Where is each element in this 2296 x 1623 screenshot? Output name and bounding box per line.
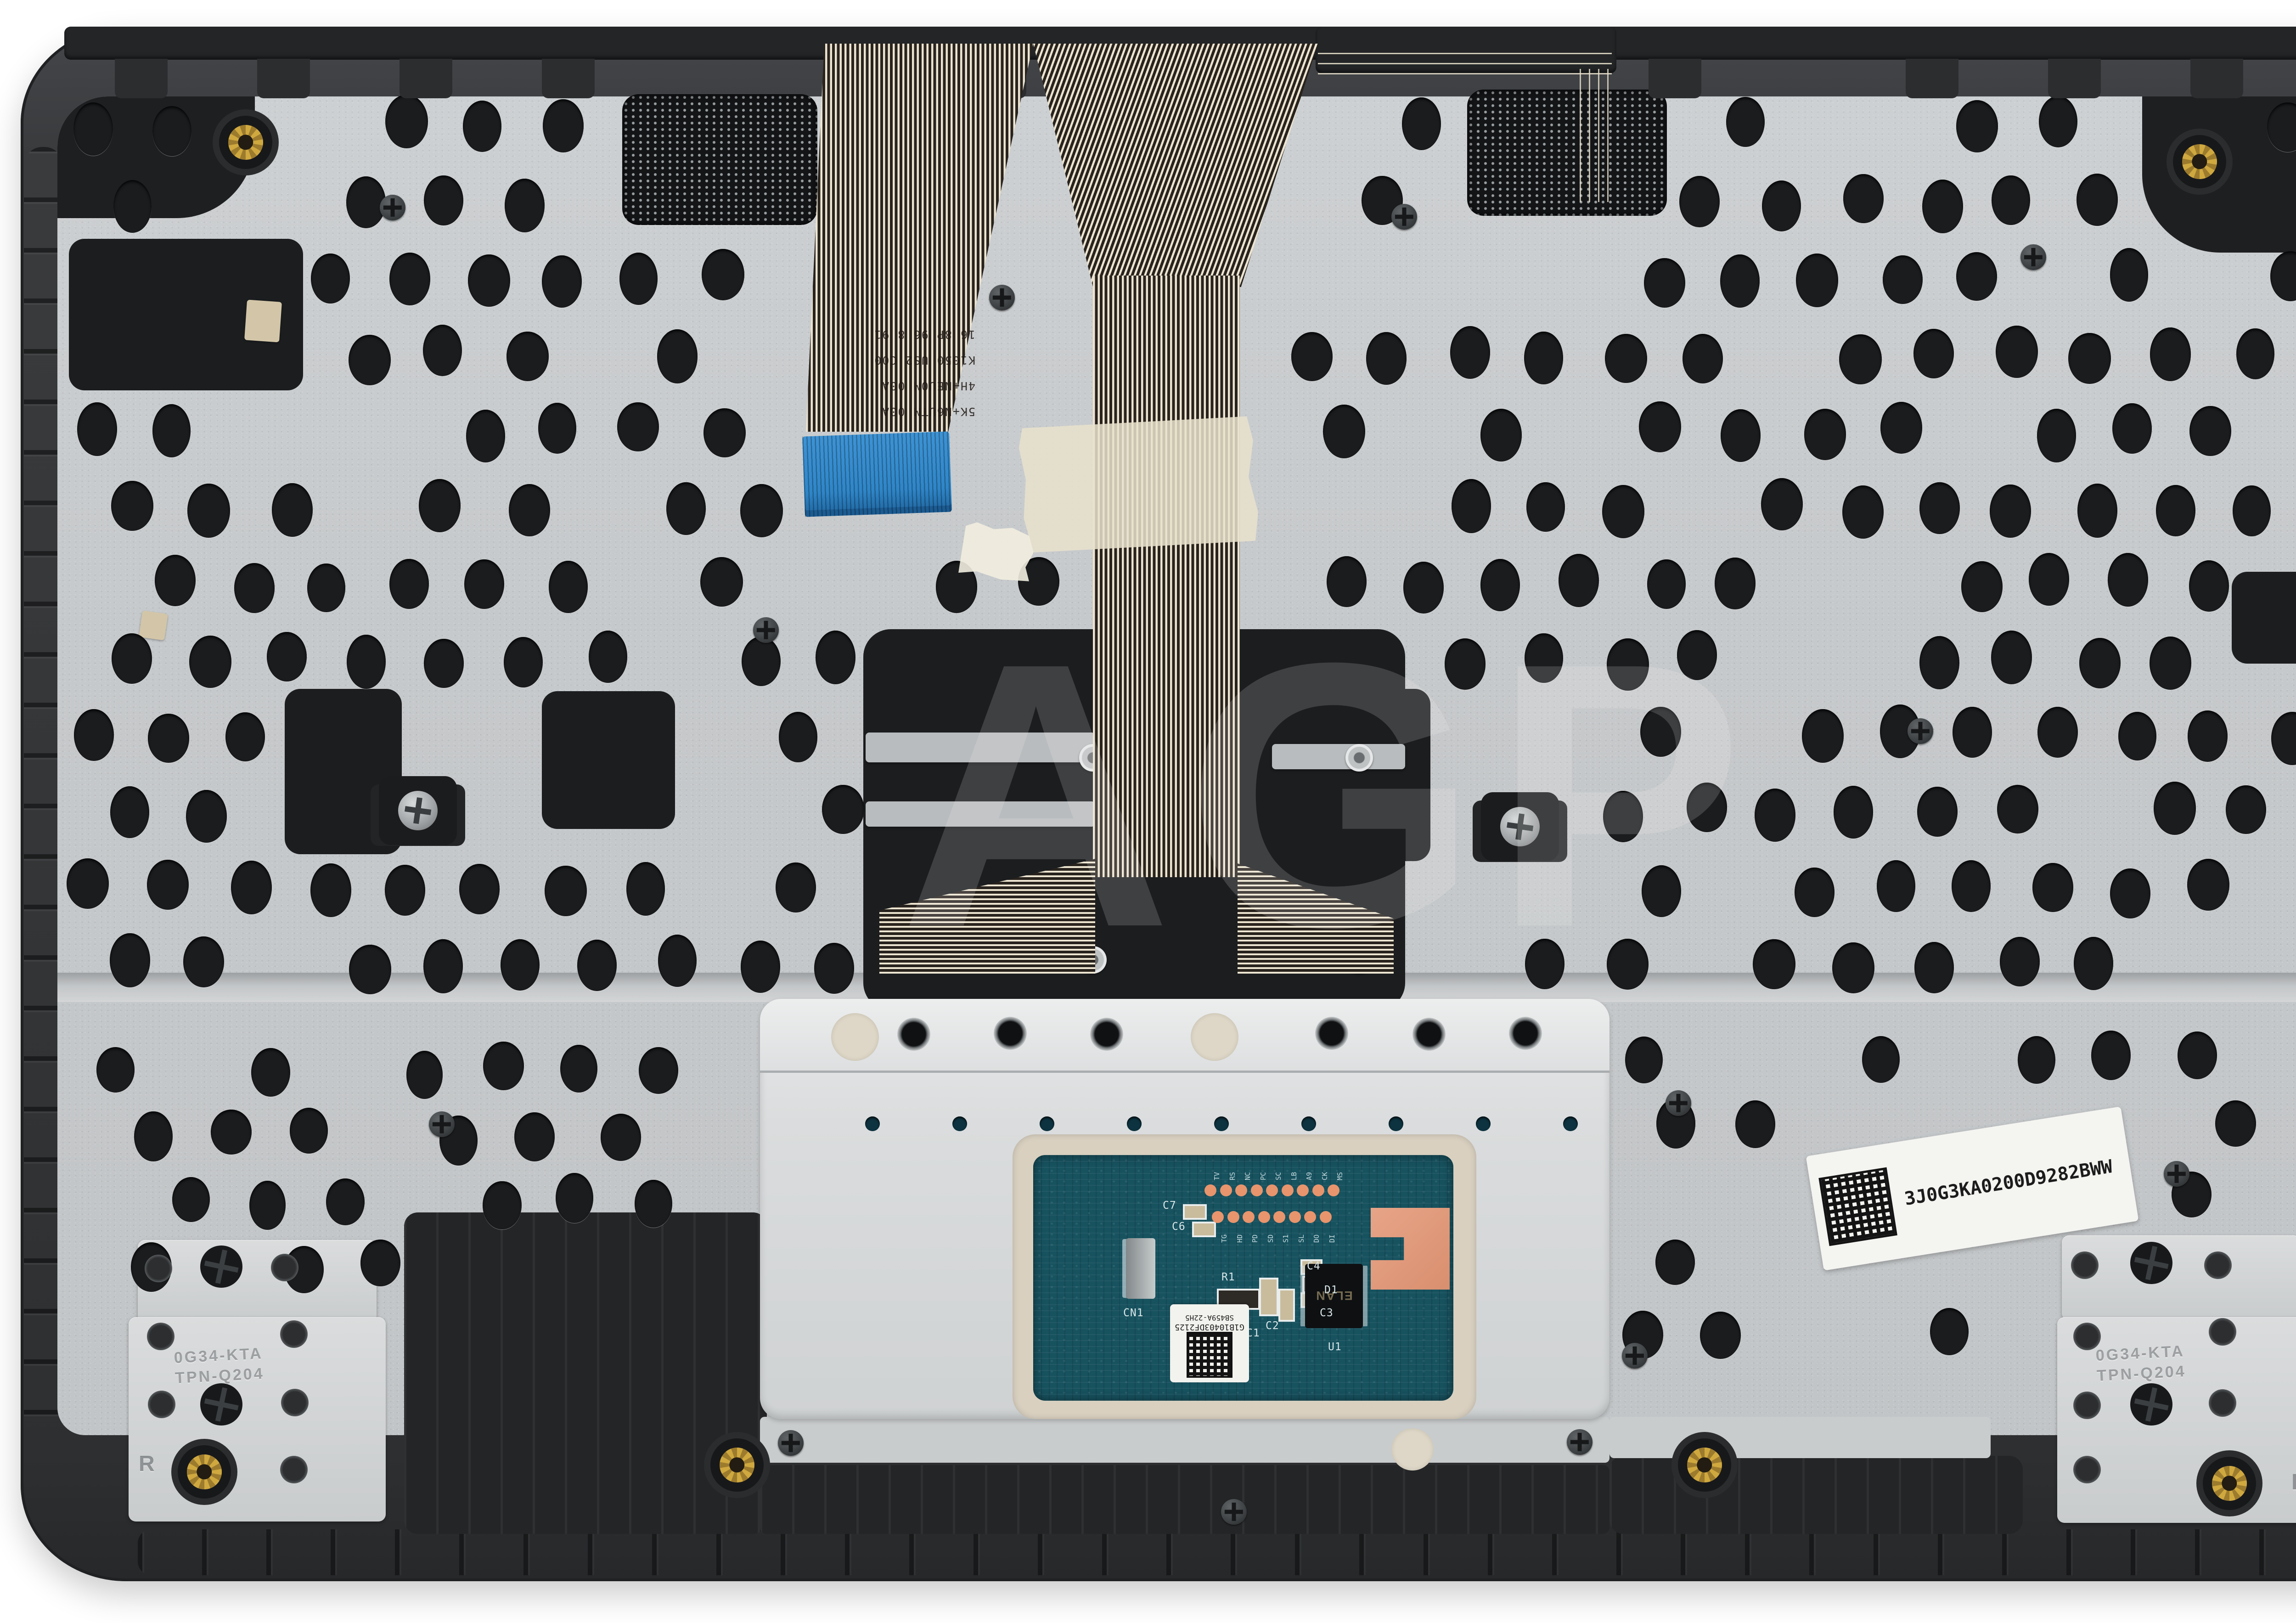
plate-hole — [1804, 409, 1846, 460]
plate-hole — [1640, 707, 1681, 757]
plate-hole — [234, 563, 275, 613]
plate-hole — [148, 714, 189, 762]
plate-hole — [1832, 942, 1874, 994]
plate-hole — [2037, 707, 2078, 758]
plate-hole — [1996, 326, 2038, 378]
top-trim-tab — [542, 59, 595, 98]
plate-hole — [155, 555, 195, 606]
plate-hole — [2039, 96, 2077, 147]
plate-hole — [639, 1047, 678, 1094]
plate-hole — [1843, 174, 1883, 223]
plate-hole — [187, 484, 230, 538]
plate-hole — [1715, 558, 1755, 609]
hinge-right-letter: L — [2291, 1470, 2296, 1495]
hinge-bracket-hole — [280, 1456, 308, 1483]
plate-hole — [419, 479, 461, 532]
plate-hole — [1919, 636, 1959, 689]
plate-hole — [2091, 1031, 2131, 1080]
phillips-screw — [1666, 1090, 1691, 1116]
plate-hole — [2110, 248, 2149, 302]
plate-hole — [560, 1045, 597, 1093]
plate-hole — [2018, 1036, 2055, 1084]
plate-hole — [2150, 327, 2191, 381]
connector-contact-stripes — [802, 431, 952, 517]
plate-hole — [2189, 406, 2231, 456]
plate-hole — [1625, 1037, 1663, 1083]
plate-hole — [1677, 630, 1717, 680]
solder-pad — [1212, 1211, 1224, 1223]
plate-hole — [189, 636, 231, 688]
ref-r1: R1 — [1221, 1271, 1235, 1283]
solder-pad — [1258, 1211, 1270, 1223]
adhesive-disc — [1391, 1428, 1434, 1471]
plate-hole — [1839, 334, 1881, 384]
solder-pad-label: SD — [1266, 1234, 1275, 1243]
ref-c3: C3 — [1320, 1307, 1334, 1319]
plate-hole — [776, 862, 816, 913]
plate-hole — [504, 637, 543, 688]
hinge-bracket-hole — [280, 1320, 308, 1348]
plate-hole — [1877, 860, 1915, 912]
plate-hole — [249, 1181, 286, 1230]
plate-hole — [505, 179, 545, 232]
plate-hole — [77, 402, 117, 456]
plate-hole — [1796, 254, 1839, 307]
plate-hole — [1961, 561, 2003, 612]
plate-hole — [2029, 553, 2069, 606]
plate-hole — [814, 943, 854, 993]
plate-hole — [700, 557, 743, 607]
plate-hole — [1762, 180, 1801, 232]
plate-hole — [506, 332, 549, 381]
speaker-mesh-right — [1467, 90, 1667, 216]
datamatrix-code — [1187, 1332, 1232, 1378]
plate-hole — [385, 865, 425, 915]
plate-cutout — [2232, 572, 2296, 664]
bracket-small-hole — [1214, 1116, 1229, 1131]
solder-pad-label: LB — [1290, 1172, 1298, 1180]
solder-pad — [1320, 1211, 1332, 1223]
ref-cn1: CN1 — [1123, 1307, 1144, 1319]
plate-hole — [1735, 1100, 1775, 1148]
keyboard-flex-cable-bundle — [1093, 276, 1240, 877]
plate-hole — [96, 1047, 135, 1093]
plate-hole — [2118, 712, 2156, 761]
flex-cable-connector-blue — [802, 431, 952, 517]
frame-ribs-bottom — [138, 1529, 2296, 1575]
plate-hole — [1720, 254, 1760, 308]
solder-pad — [1204, 1184, 1216, 1196]
hinge-bracket-hole — [2073, 1392, 2101, 1419]
plate-hole — [2226, 785, 2266, 834]
plate-hole — [2112, 403, 2152, 454]
plate-hole — [326, 1178, 365, 1226]
plate-hole — [1327, 556, 1367, 607]
brass-threaded-insert — [720, 1448, 754, 1482]
solder-pad-label: TG — [1220, 1234, 1228, 1243]
plate-hole — [1883, 255, 1923, 304]
plate-hole — [406, 1051, 443, 1099]
plate-hole — [2215, 1100, 2256, 1147]
plate-hole — [389, 559, 429, 609]
plate-hole — [1403, 562, 1444, 614]
top-trim-tab — [2190, 59, 2243, 98]
solder-pad — [1289, 1211, 1301, 1223]
solder-pad — [1328, 1184, 1339, 1196]
plate-hole — [1753, 939, 1795, 989]
hinge-bracket-hole — [281, 1389, 309, 1416]
plate-hole — [2068, 333, 2110, 384]
plate-hole — [740, 484, 783, 537]
plate-hole — [225, 712, 265, 761]
hinge-bracket-hole — [2204, 1251, 2232, 1279]
hinge-left-letter: R — [139, 1451, 155, 1476]
solder-pad — [1304, 1211, 1316, 1223]
brass-threaded-insert — [1687, 1448, 1722, 1482]
plate-hole — [112, 633, 152, 684]
plate-hole — [549, 561, 588, 614]
solder-pad-label: DI — [1328, 1234, 1336, 1243]
plate-hole — [1842, 485, 1884, 539]
solder-pad-label: RS — [1228, 1172, 1237, 1180]
hinge-bracket-cross-hole — [200, 1245, 242, 1288]
touchpad-bracket-top-band — [760, 999, 1609, 1073]
top-trim-tab — [115, 59, 168, 98]
adhesive-disc — [831, 1013, 879, 1061]
plate-hole — [459, 864, 500, 914]
hinge-bracket-hole — [2073, 1456, 2101, 1483]
solder-pad — [1312, 1184, 1324, 1196]
plate-hole — [2188, 710, 2228, 762]
touchpad-controller-chip: ELAN — [1305, 1264, 1363, 1328]
bracket-small-hole — [1389, 1116, 1403, 1131]
solder-pad — [1235, 1184, 1247, 1196]
plate-hole — [1755, 789, 1795, 842]
plate-hole — [1291, 332, 1333, 381]
plate-hole — [1644, 258, 1685, 308]
plate-hole — [2187, 859, 2229, 911]
plate-hole — [423, 939, 462, 993]
hinge-bracket-right-upper — [2062, 1235, 2296, 1320]
capacitor-c1 — [1259, 1278, 1278, 1316]
plate-hole — [702, 249, 744, 300]
plate-hole — [657, 329, 698, 383]
keyboard-latch-left — [379, 776, 457, 845]
bracket-small-hole — [1127, 1116, 1142, 1131]
plate-hole — [111, 481, 153, 531]
plate-hole — [1956, 252, 1997, 301]
phillips-screw — [2020, 244, 2046, 270]
plate-hole — [1991, 631, 2032, 684]
ref-c2: C2 — [1266, 1320, 1279, 1332]
keyboard-latch-right — [1481, 792, 1559, 861]
solder-pad — [1220, 1184, 1232, 1196]
membrane-metal-strip — [866, 733, 1095, 762]
flex-cable-thin-traces-vertical — [1580, 69, 1612, 202]
bracket-screw-hole — [1090, 1018, 1123, 1051]
plate-hole — [1930, 1308, 1969, 1356]
phillips-screw — [380, 195, 405, 220]
touchpad-serial-label: G1B10403DF2125 SB459A-22H5 — [1170, 1304, 1249, 1382]
solder-pad — [1297, 1184, 1309, 1196]
plate-hole — [577, 940, 616, 991]
cable-print-line: 16 8P 96 8 91 — [814, 321, 975, 347]
plate-hole — [2074, 937, 2113, 990]
cable-print-line: K1050 US2 C00 — [814, 347, 975, 373]
plate-hole — [211, 1110, 251, 1155]
plate-hole — [1526, 482, 1565, 532]
phillips-screw — [1622, 1343, 1648, 1369]
plate-hole — [514, 1112, 555, 1161]
bracket-small-hole — [1301, 1116, 1316, 1131]
bracket-small-hole — [1476, 1116, 1491, 1131]
solder-pad-label: SC — [1274, 1172, 1283, 1180]
hinge-bracket-hole — [2073, 1323, 2101, 1350]
top-trim-tab — [2048, 59, 2101, 98]
phillips-screw — [753, 617, 779, 643]
plate-hole — [147, 860, 189, 910]
plate-hole — [152, 106, 191, 156]
plate-hole — [311, 254, 350, 304]
hinge-bracket-hole — [2209, 1389, 2236, 1417]
bracket-screw-hole — [897, 1018, 930, 1051]
plate-hole — [1452, 479, 1491, 533]
plate-hole — [172, 1177, 210, 1222]
plate-hole — [1880, 402, 1923, 454]
plate-hole — [543, 99, 584, 152]
plate-hole — [741, 941, 780, 992]
plate-hole — [1655, 1240, 1695, 1285]
phillips-screw — [429, 1111, 455, 1137]
plate-hole — [389, 253, 430, 305]
plate-hole — [1445, 638, 1486, 690]
plate-hole — [1913, 329, 1954, 378]
hinge-bracket-cross-hole — [2130, 1383, 2172, 1426]
hinge-bracket-hole — [145, 1255, 172, 1282]
plate-hole — [658, 935, 697, 987]
plate-hole — [290, 1108, 328, 1154]
plate-hole — [231, 861, 272, 914]
plate-hole — [423, 325, 462, 377]
phillips-screw — [2164, 1161, 2189, 1187]
plate-hole — [1323, 405, 1365, 458]
brass-threaded-insert — [187, 1454, 222, 1489]
plate-hole — [1687, 783, 1727, 832]
plate-hole — [2077, 484, 2117, 538]
plate-hole — [2189, 560, 2229, 612]
plate-hole — [74, 709, 113, 761]
plate-hole — [1450, 326, 1490, 379]
touchpad-connector-cn1 — [1126, 1238, 1155, 1299]
plate-hole — [2233, 485, 2271, 536]
plate-hole — [1559, 554, 1599, 608]
plate-hole — [1953, 707, 1992, 758]
solder-pad — [1282, 1184, 1294, 1196]
plate-hole — [601, 1114, 642, 1161]
plate-hole — [468, 254, 510, 307]
ref-d1: D1 — [1324, 1284, 1338, 1296]
plate-hole — [1914, 942, 1954, 993]
plate-hole — [1700, 1312, 1741, 1359]
bracket-small-hole — [952, 1116, 967, 1131]
solder-pad-label: PD — [1251, 1234, 1259, 1243]
plate-hole — [1639, 401, 1681, 453]
plate-hole — [626, 862, 665, 916]
bracket-small-hole — [865, 1116, 880, 1131]
capacitor-c7 — [1183, 1204, 1207, 1220]
solder-pad — [1266, 1184, 1278, 1196]
solder-pad-label: MS — [1336, 1172, 1344, 1180]
plate-hole — [360, 1240, 400, 1286]
plate-hole — [1795, 868, 1835, 917]
bottom-plastic-zone-center — [760, 1465, 1609, 1534]
plate-hole — [1480, 559, 1520, 611]
hinge-bracket-cross-hole — [2130, 1242, 2172, 1284]
plate-hole — [347, 635, 386, 688]
hinge-bracket-hole — [271, 1254, 298, 1281]
solder-pad-label: PC — [1259, 1172, 1267, 1180]
bracket-screw-hole — [1412, 1018, 1446, 1051]
solder-pad — [1251, 1184, 1263, 1196]
plate-hole — [134, 1111, 172, 1162]
plate-hole — [1683, 334, 1723, 383]
solder-pad-label: HD — [1236, 1234, 1244, 1243]
plate-hole — [1761, 478, 1803, 530]
beige-sticker — [244, 299, 282, 342]
plate-hole — [1525, 633, 1563, 683]
brass-threaded-insert — [2182, 144, 2217, 179]
plate-hole — [346, 176, 386, 228]
hinge-right-embossed-code: 0G34-KTA TPN-Q204 — [2095, 1341, 2187, 1386]
plate-hole — [501, 939, 540, 991]
solder-pad — [1273, 1211, 1285, 1223]
hinge-bracket-hole — [147, 1323, 174, 1350]
hinge-bracket-cross-hole — [200, 1383, 242, 1426]
plate-hole — [1952, 860, 1991, 912]
plate-hole — [2110, 868, 2150, 919]
plate-hole — [466, 410, 505, 462]
plate-hole — [2108, 553, 2148, 607]
latch-screw — [1500, 807, 1540, 846]
brass-threaded-insert — [228, 125, 263, 160]
phillips-screw — [1567, 1429, 1593, 1455]
hinge-left-embossed-code: 0G34-KTA TPN-Q204 — [174, 1343, 265, 1388]
plate-hole — [1919, 482, 1959, 534]
plate-hole — [272, 483, 313, 536]
kapton-tape — [1018, 412, 1260, 557]
hinge-bracket-hole — [148, 1391, 175, 1418]
plate-hole — [113, 180, 152, 233]
plate-hole — [349, 335, 391, 386]
laptop-palmrest-rear-photo: 5K+N6UTM 00A 4H+NEU0M 00A K1050 US2 C00 … — [0, 0, 2296, 1623]
plate-hole — [666, 482, 706, 535]
plate-hole — [822, 785, 864, 834]
solder-pad-label: TV — [1213, 1172, 1221, 1180]
plate-hole — [589, 631, 628, 683]
plate-hole — [2154, 782, 2196, 835]
plate-hole — [2037, 409, 2076, 462]
bottom-metal-strip-right — [1609, 1417, 1991, 1458]
beige-sticker — [139, 610, 168, 640]
plate-hole — [1917, 787, 1958, 837]
plate-hole — [2236, 328, 2274, 379]
plate-hole — [1602, 485, 1644, 538]
plate-hole — [2079, 638, 2121, 688]
cable-print-line: 5K+N6UTM 00A — [814, 399, 975, 424]
serial-number-text: 3J0G3KA0200D9282BWW — [1903, 1156, 2114, 1210]
capacitor-c2 — [1278, 1289, 1295, 1322]
plate-hole — [463, 101, 501, 152]
adhesive-disc — [1191, 1013, 1238, 1061]
plate-hole — [424, 639, 463, 688]
plate-hole — [1802, 709, 1844, 763]
phillips-screw — [1908, 718, 1933, 744]
phillips-screw — [1221, 1499, 1247, 1525]
top-trim-tab — [400, 59, 452, 98]
flex-cable-thin-traces — [1318, 46, 1612, 74]
plate-hole — [1524, 332, 1563, 384]
phillips-screw — [989, 285, 1015, 310]
plate-hole — [2156, 485, 2195, 536]
top-trim-tab — [1649, 59, 1701, 98]
plate-hole — [2178, 1031, 2217, 1079]
plate-hole — [703, 408, 746, 457]
hinge-bracket-hole — [2209, 1318, 2236, 1346]
plate-hole — [742, 637, 781, 686]
plate-hole — [424, 175, 463, 225]
plate-hole — [310, 863, 351, 917]
plate-hole — [464, 559, 504, 609]
plate-hole — [617, 402, 658, 451]
solder-pad — [1243, 1211, 1255, 1223]
bracket-screw-hole — [1509, 1017, 1542, 1050]
plate-hole — [183, 936, 224, 988]
ref-c7: C7 — [1163, 1200, 1176, 1212]
plate-cutout — [542, 691, 675, 829]
top-trim-tab — [257, 59, 310, 98]
plate-hole — [556, 1173, 593, 1223]
plate-hole — [1607, 638, 1649, 691]
plate-hole — [1992, 175, 2030, 225]
plate-hole — [1605, 334, 1647, 383]
bracket-small-hole — [1563, 1116, 1578, 1131]
plate-hole — [1642, 865, 1681, 917]
membrane-rivet — [1345, 744, 1373, 772]
plate-hole — [1721, 409, 1761, 462]
plate-hole — [1366, 332, 1407, 385]
bracket-screw-hole — [994, 1017, 1027, 1050]
plate-hole — [110, 786, 149, 838]
plate-hole — [1679, 176, 1719, 227]
bracket-small-hole — [1040, 1116, 1054, 1131]
plate-hole — [1603, 791, 1643, 842]
plate-hole — [509, 484, 550, 536]
plate-hole — [1956, 100, 1998, 152]
solder-pad-label: A9 — [1305, 1172, 1313, 1180]
plate-hole — [1726, 97, 1765, 147]
plate-hole — [110, 933, 150, 987]
cable-print-line: 4H+NEU0M 00A — [814, 373, 975, 399]
solder-pad-label: NC — [1244, 1172, 1252, 1180]
plate-hole — [483, 1181, 521, 1230]
phillips-screw — [1391, 204, 1417, 230]
qr-code — [1818, 1167, 1897, 1246]
plate-hole — [816, 631, 855, 684]
plate-hole — [619, 253, 658, 305]
plate-hole — [186, 790, 227, 843]
bracket-screw-hole — [1315, 1017, 1348, 1050]
plate-hole — [2150, 637, 2192, 690]
